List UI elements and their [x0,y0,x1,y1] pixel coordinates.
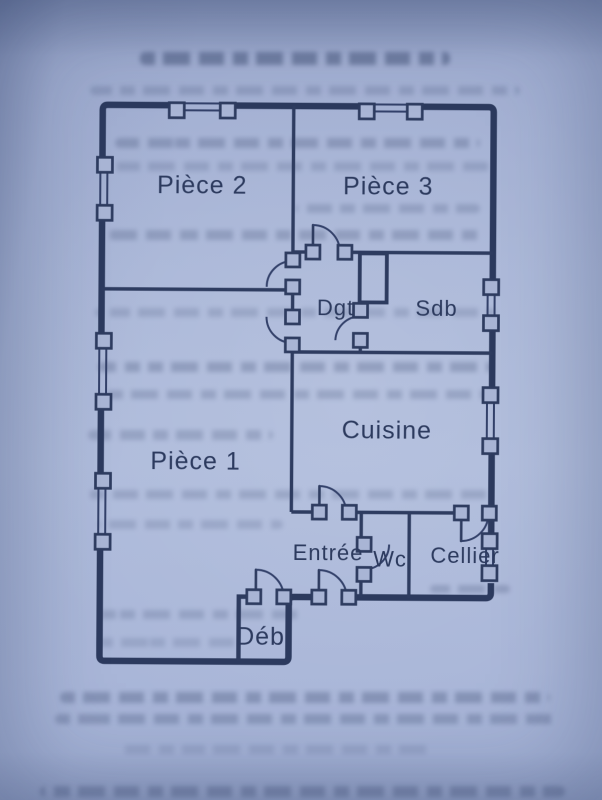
room-label-piece-2: Pièce 2 [157,171,248,200]
window-symbol [97,157,112,220]
room-label-cuisine: Cuisine [342,416,433,445]
scanned-floor-plan-photo: Pièce 2 Pièce 3 Dgt Sdb Cuisine Pièce 1 … [0,0,602,800]
room-label-dgt: Dgt [317,295,354,320]
room-label-piece-3: Pièce 3 [343,172,434,201]
window-symbol [96,333,111,409]
window-symbol [483,280,498,331]
room-label-cellier: Cellier [430,543,500,568]
room-label-sdb: Sdb [415,296,457,321]
plan-linework [94,102,499,663]
room-labels: Pièce 2 Pièce 3 Dgt Sdb Cuisine Pièce 1 … [149,171,502,652]
window-symbol [483,388,498,454]
window-symbol [169,103,235,118]
window-symbol [359,104,422,119]
duct-box [360,253,387,302]
room-label-entree: Entrée [293,540,364,565]
room-label-piece-1: Pièce 1 [150,447,241,476]
window-symbol [95,473,110,549]
floor-plan-drawing: Pièce 2 Pièce 3 Dgt Sdb Cuisine Pièce 1 … [0,0,602,800]
room-label-wc: Wc [373,546,407,571]
room-label-deb: Déb [236,623,285,651]
